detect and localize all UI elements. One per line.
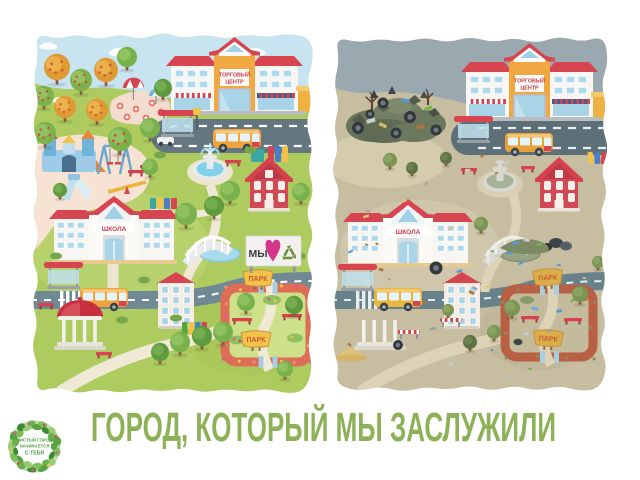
svg-text:ПАРК: ПАРК bbox=[248, 276, 268, 283]
svg-text:С ТЕБЯ: С ТЕБЯ bbox=[25, 451, 44, 457]
svg-text:ШКОЛА: ШКОЛА bbox=[396, 229, 421, 236]
svg-text:ТОРГОВЫЙ: ТОРГОВЫЙ bbox=[514, 77, 545, 85]
svg-text:ТОРГОВЫЙ: ТОРГОВЫЙ bbox=[219, 71, 250, 79]
svg-text:ПАРК: ПАРК bbox=[538, 274, 558, 282]
svg-text:ШКОЛА: ШКОЛА bbox=[102, 226, 127, 233]
svg-text:НАЧИНАЕТСЯ: НАЧИНАЕТСЯ bbox=[20, 444, 50, 449]
svg-text:ПАРК: ПАРК bbox=[539, 336, 559, 344]
svg-text:МЫ: МЫ bbox=[248, 248, 267, 260]
svg-text:ГОРОД, КОТОРЫЙ МЫ ЗАСЛУЖИЛИ: ГОРОД, КОТОРЫЙ МЫ ЗАСЛУЖИЛИ bbox=[91, 404, 556, 450]
svg-text:ЧИСТЫЙ ГОРОД: ЧИСТЫЙ ГОРОД bbox=[17, 438, 52, 443]
svg-text:ЦЕНТР: ЦЕНТР bbox=[520, 86, 539, 92]
svg-text:ЦЕНТР: ЦЕНТР bbox=[225, 80, 244, 86]
svg-text:ПАРК: ПАРК bbox=[246, 337, 266, 344]
